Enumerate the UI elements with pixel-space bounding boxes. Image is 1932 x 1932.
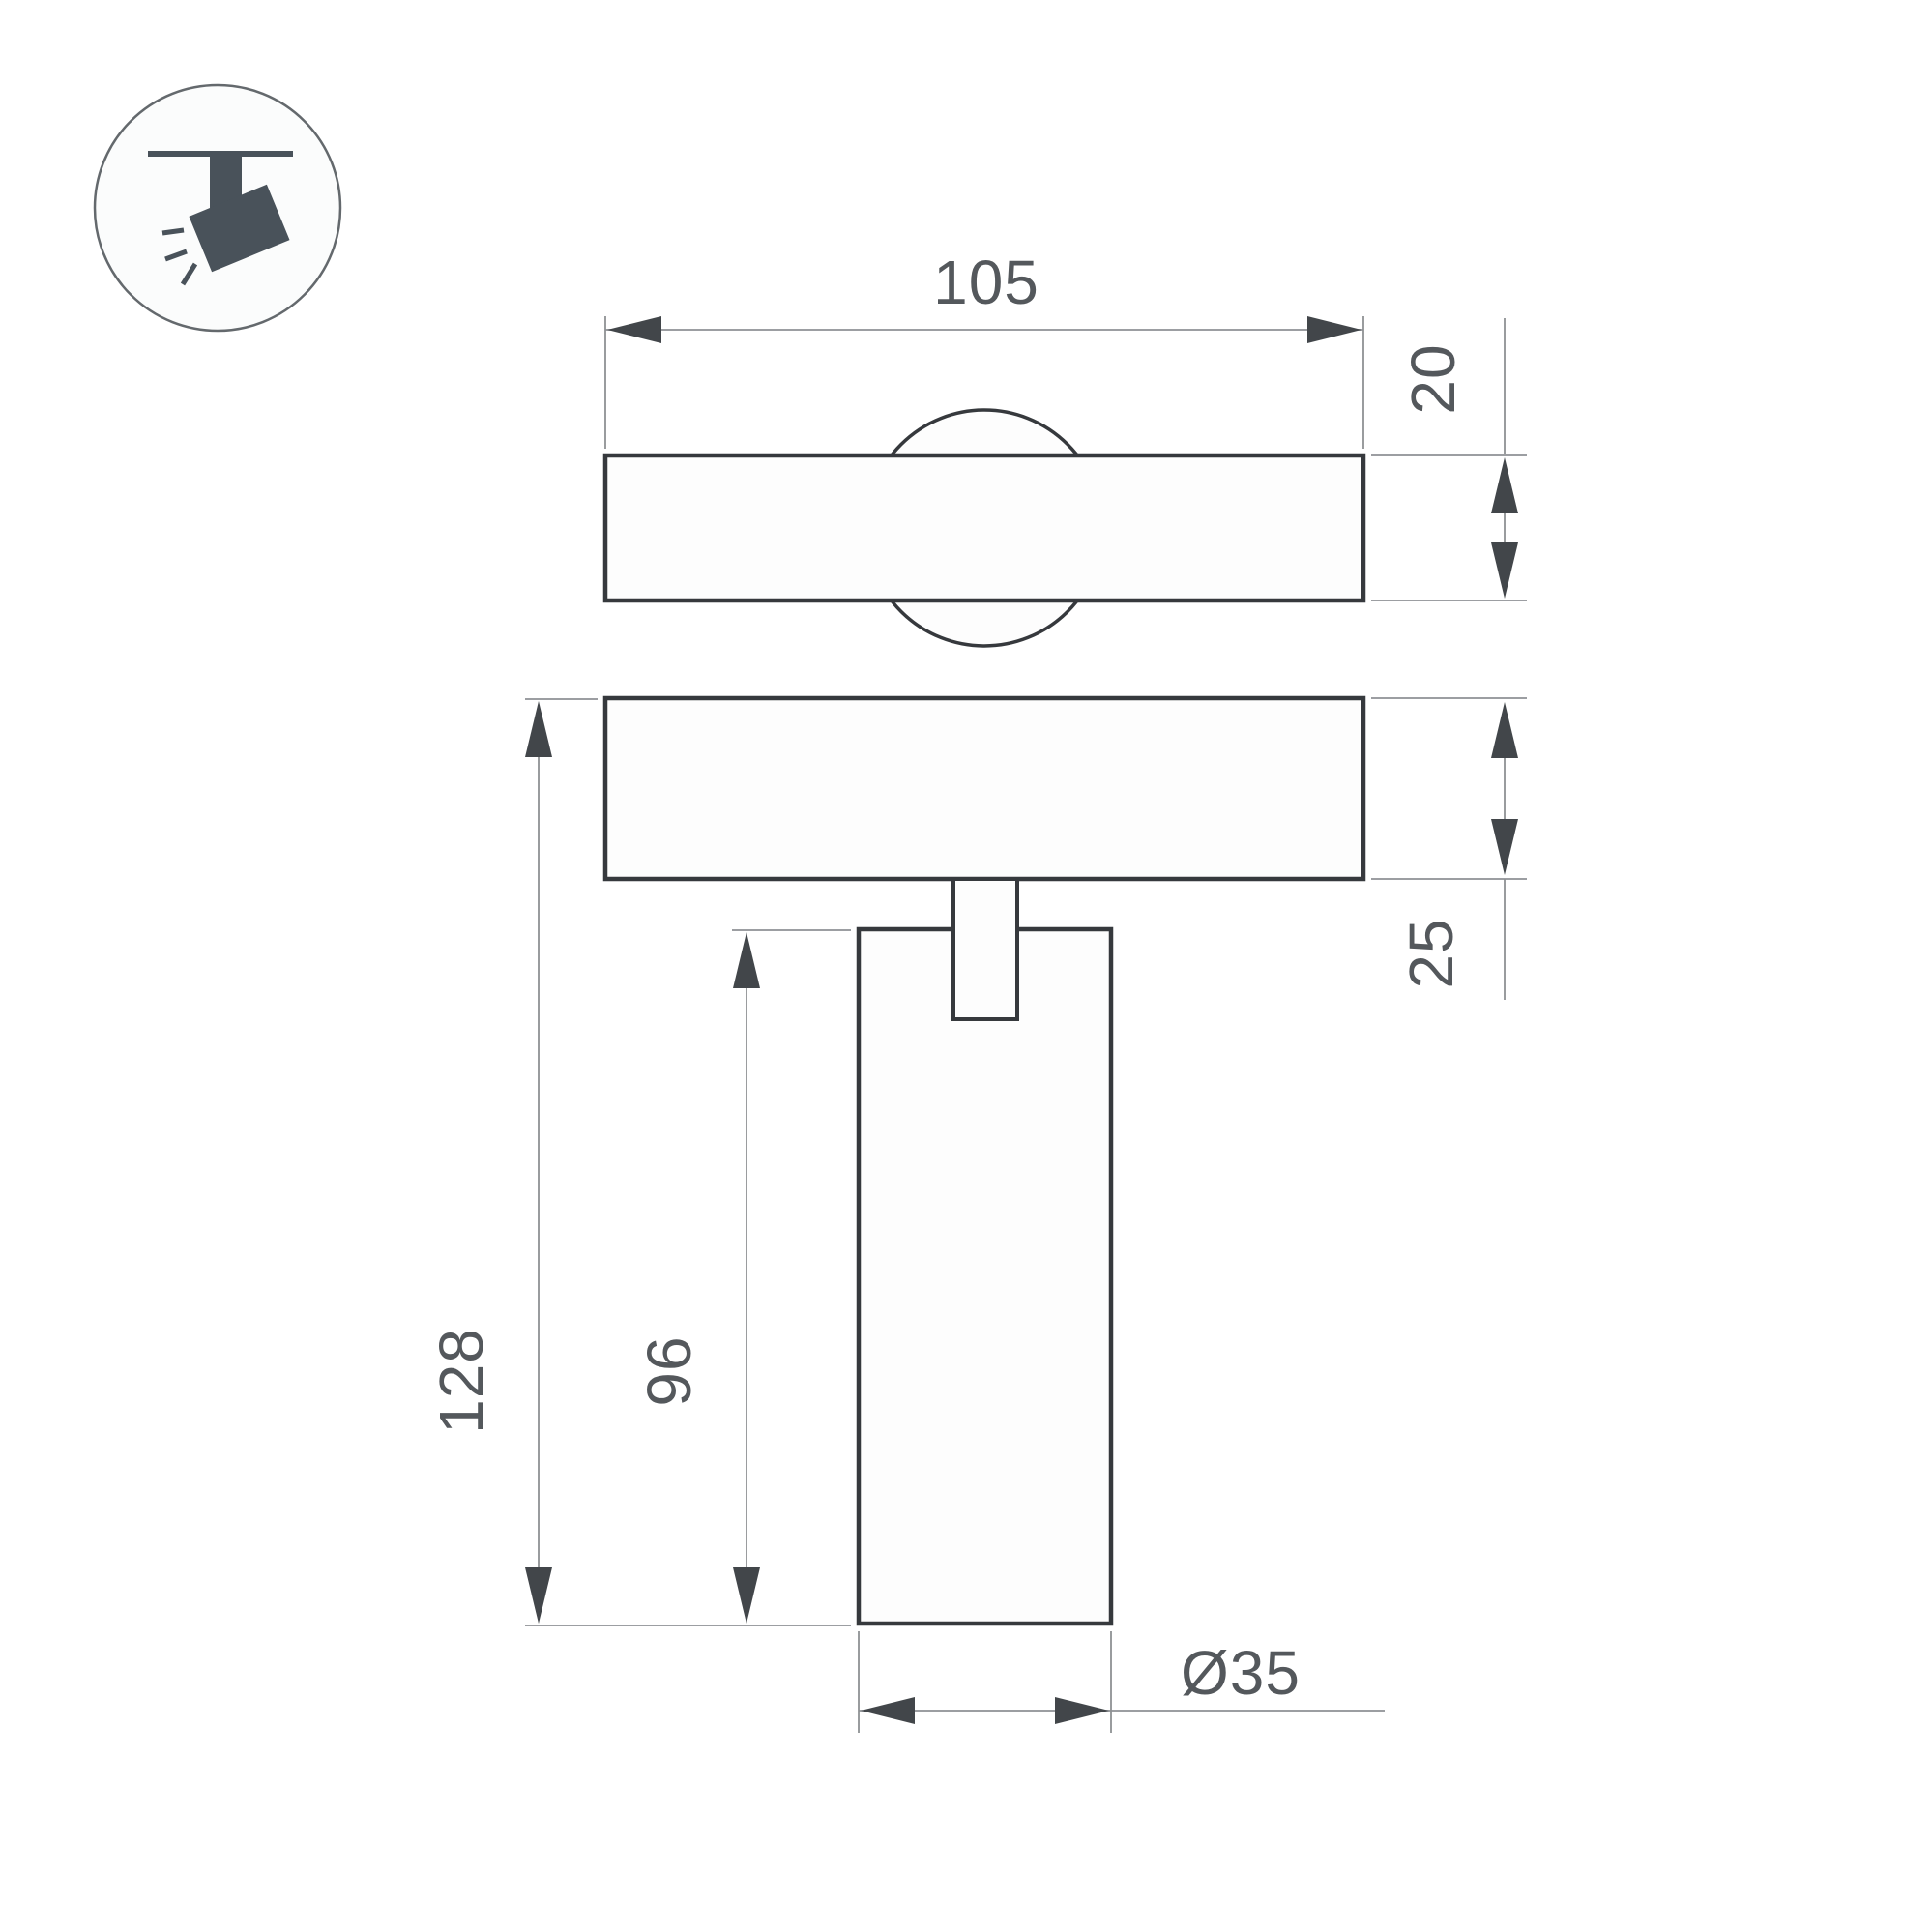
dimension-label-96: 96 bbox=[634, 1335, 704, 1406]
dimension-label-25: 25 bbox=[1396, 918, 1466, 988]
side-view bbox=[605, 698, 1363, 1624]
spotlight-body-cylinder bbox=[859, 929, 1111, 1624]
arrowhead-right bbox=[1055, 1697, 1109, 1724]
arrowhead-left bbox=[861, 1697, 915, 1724]
arrowhead-down bbox=[1491, 542, 1518, 599]
dimension-label-diameter-35: Ø35 bbox=[1181, 1638, 1301, 1708]
connector-stem bbox=[953, 879, 1017, 1019]
technical-drawing: 105 20 25 128 bbox=[0, 0, 1932, 1932]
dimension-label-128: 128 bbox=[426, 1328, 496, 1434]
arrowhead-down bbox=[733, 1567, 760, 1624]
arrowhead-up bbox=[525, 701, 552, 757]
arrowhead-up bbox=[1491, 457, 1518, 513]
dimension-plate-thickness: 20 bbox=[1371, 318, 1527, 600]
arrowhead-right bbox=[1307, 316, 1361, 343]
arrowhead-up bbox=[733, 932, 760, 988]
top-view bbox=[605, 410, 1363, 646]
dimension-base-thickness: 25 bbox=[1371, 698, 1527, 1000]
arrowhead-up bbox=[1491, 702, 1518, 758]
track-plate-side-view bbox=[605, 698, 1363, 879]
arrowhead-down bbox=[525, 1567, 552, 1624]
dimension-label-105: 105 bbox=[933, 248, 1039, 317]
arrowhead-down bbox=[1491, 819, 1518, 875]
track-plate-top-view bbox=[605, 455, 1363, 600]
arrowhead-left bbox=[607, 316, 661, 343]
dimension-label-20: 20 bbox=[1398, 343, 1468, 414]
mount-type-icon bbox=[95, 85, 340, 331]
dimension-body-length: 96 bbox=[634, 930, 851, 1624]
dimension-body-diameter: Ø35 bbox=[859, 1631, 1385, 1733]
